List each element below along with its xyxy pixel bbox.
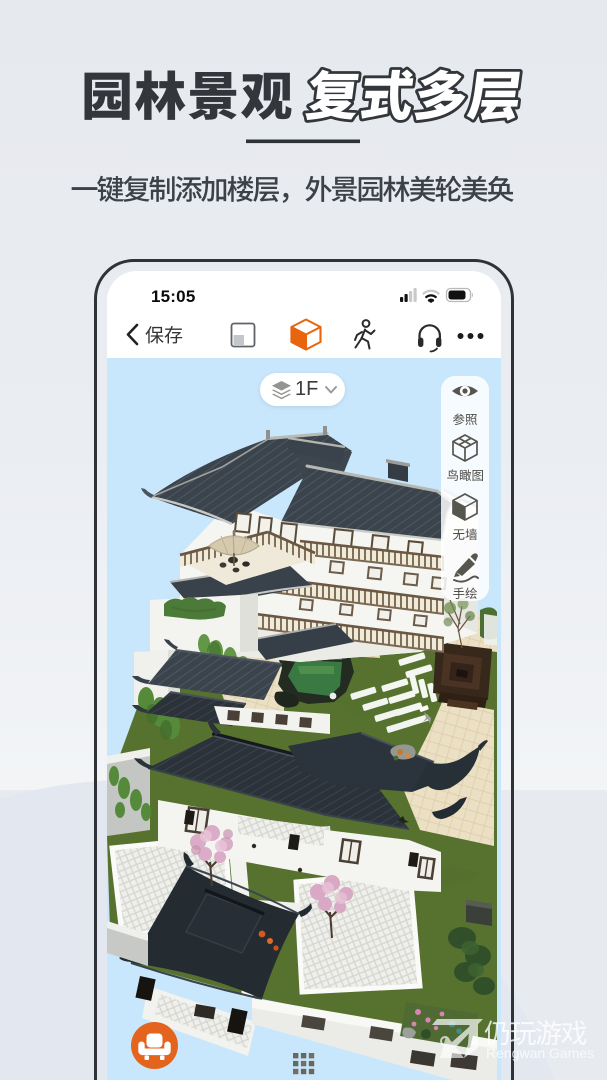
svg-text:Rengwan Games: Rengwan Games — [486, 1045, 594, 1061]
